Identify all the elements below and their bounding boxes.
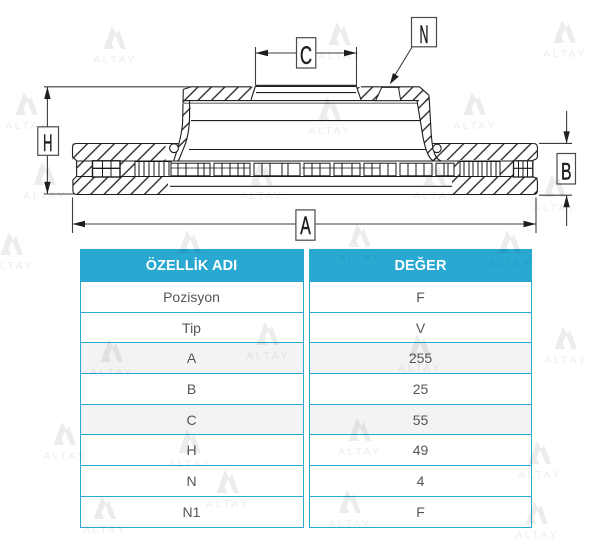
svg-text:H: H bbox=[43, 130, 53, 157]
svg-text:B: B bbox=[561, 159, 572, 186]
svg-text:C: C bbox=[300, 42, 312, 70]
svg-text:N: N bbox=[420, 21, 429, 49]
svg-text:A: A bbox=[300, 212, 311, 240]
